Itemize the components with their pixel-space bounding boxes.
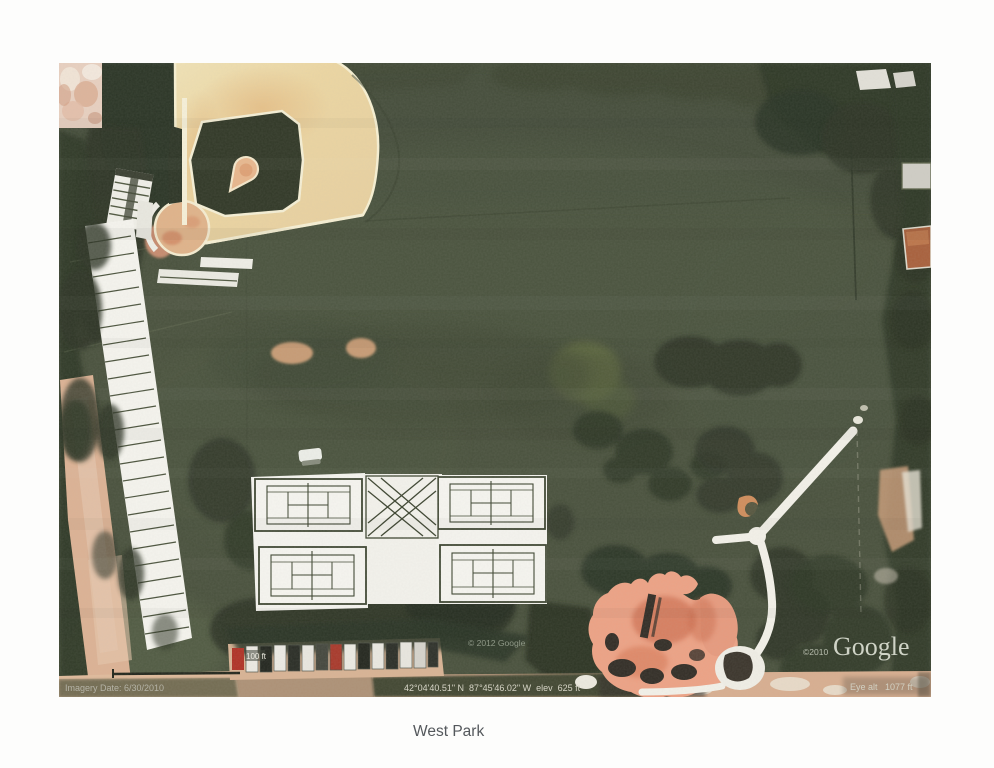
svg-text:West Park: West Park <box>413 723 484 740</box>
svg-text:Imagery Date: 6/30/2010: Imagery Date: 6/30/2010 <box>65 683 164 693</box>
svg-text:42°04'40.51" N 87°45'46.02" W: 42°04'40.51" N 87°45'46.02" W elev 625 f… <box>404 683 581 693</box>
svg-text:© 2012 Google: © 2012 Google <box>468 638 526 648</box>
svg-text:©2010: ©2010 <box>803 647 828 657</box>
svg-text:Google: Google <box>833 632 910 661</box>
svg-text:Eye alt 1077 ft: Eye alt 1077 ft <box>850 682 913 692</box>
